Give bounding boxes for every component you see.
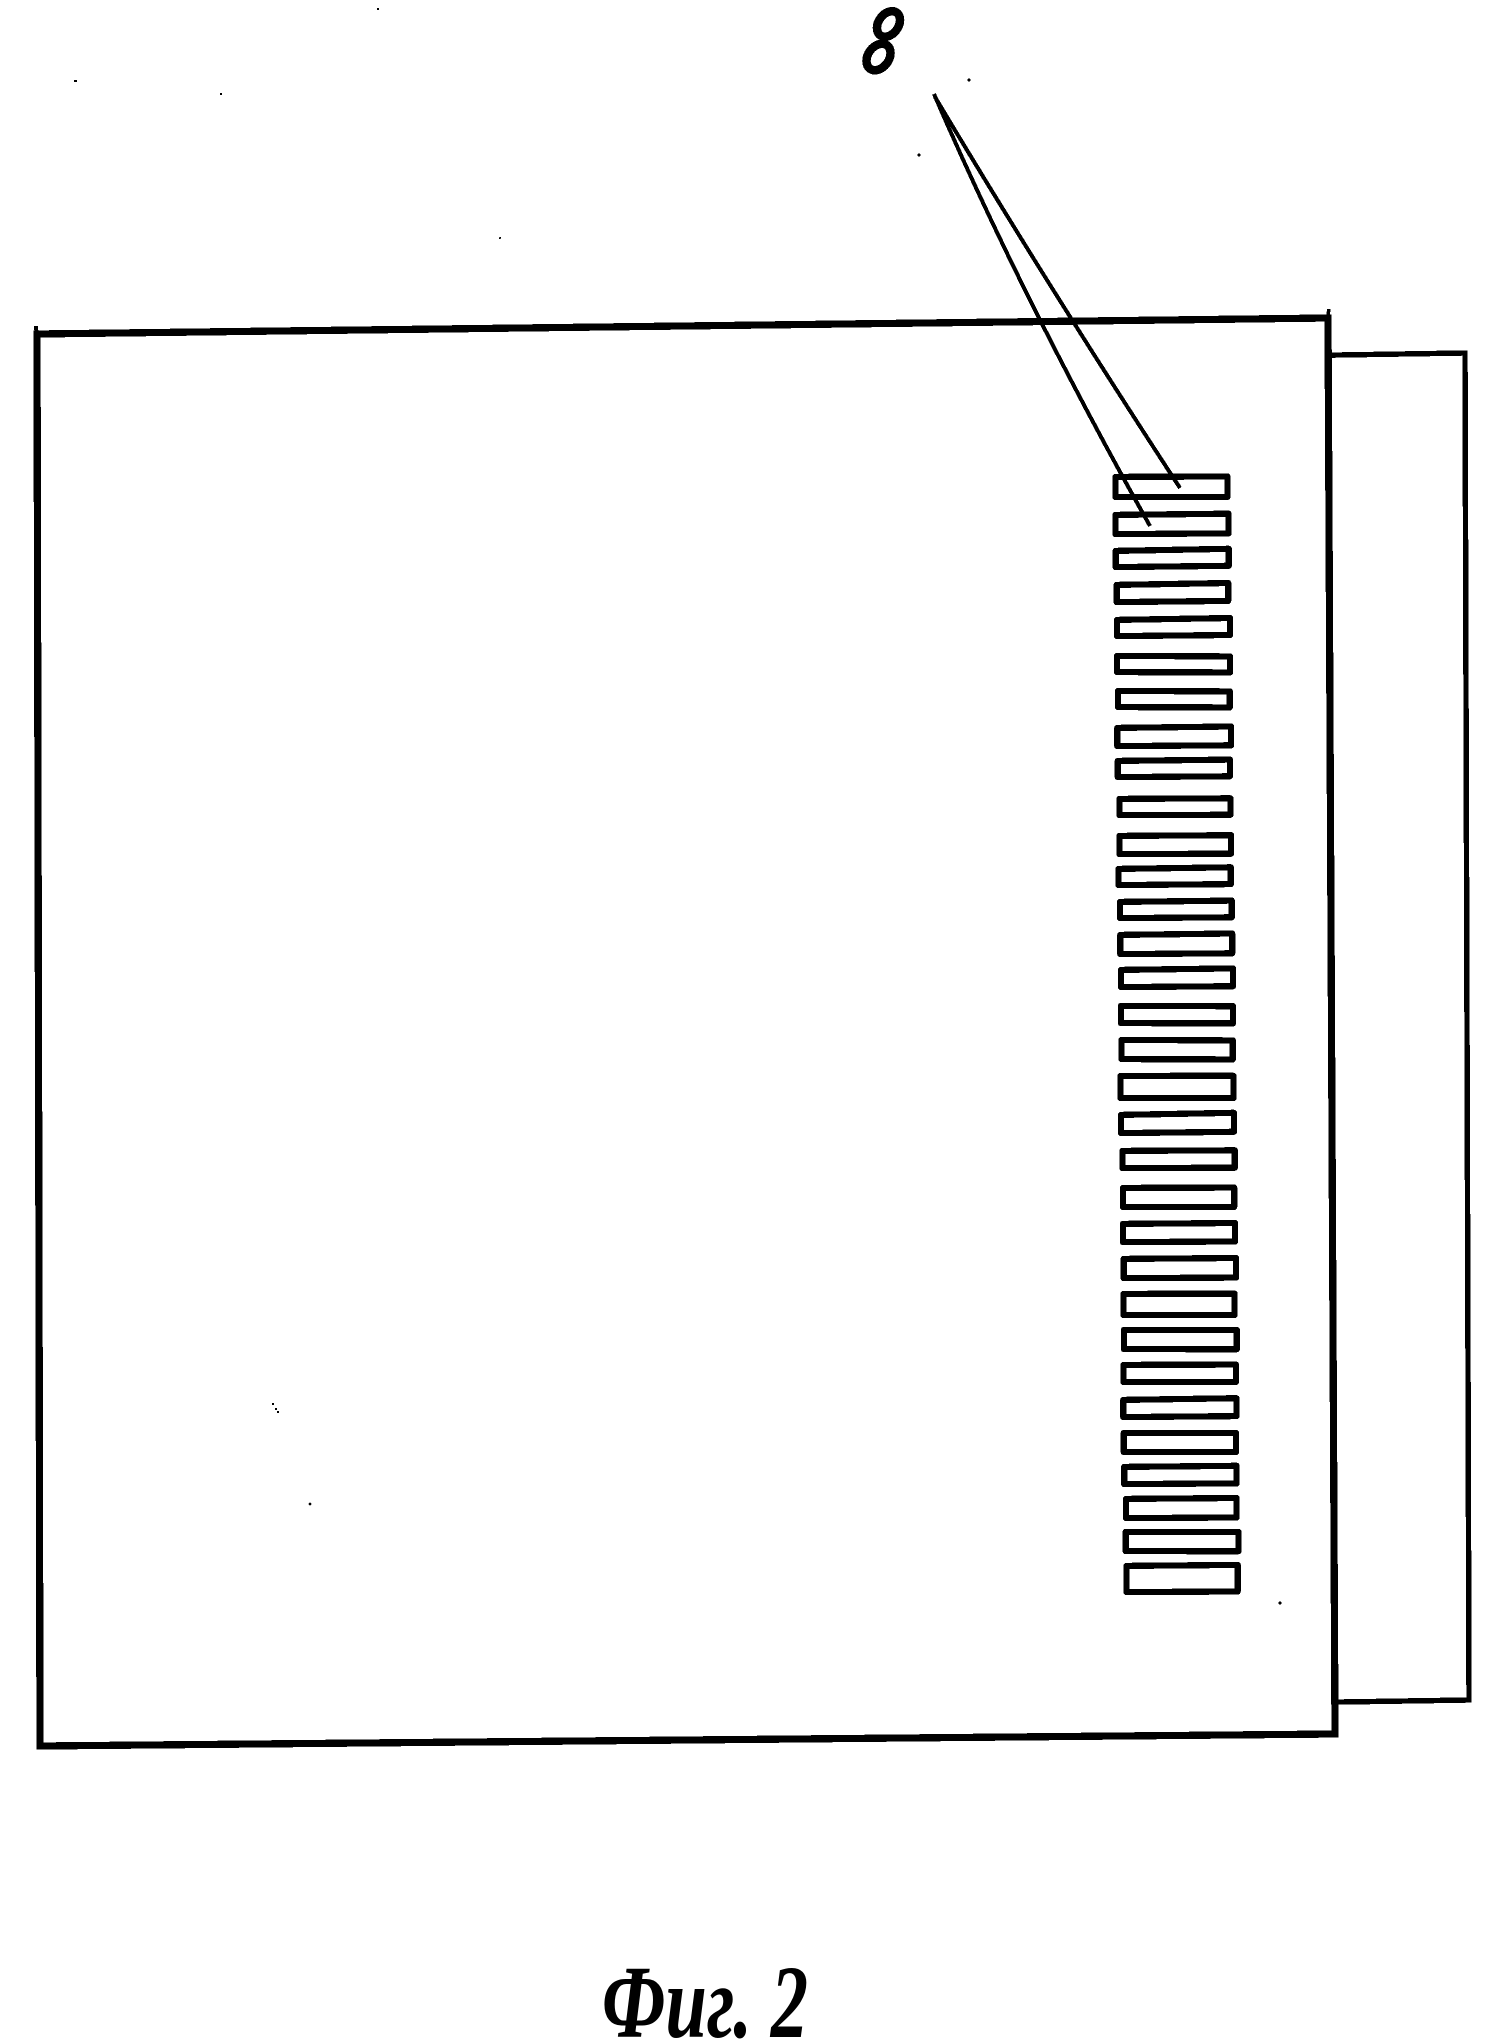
svg-text:Фиг. 2: Фиг. 2: [602, 1945, 808, 2043]
